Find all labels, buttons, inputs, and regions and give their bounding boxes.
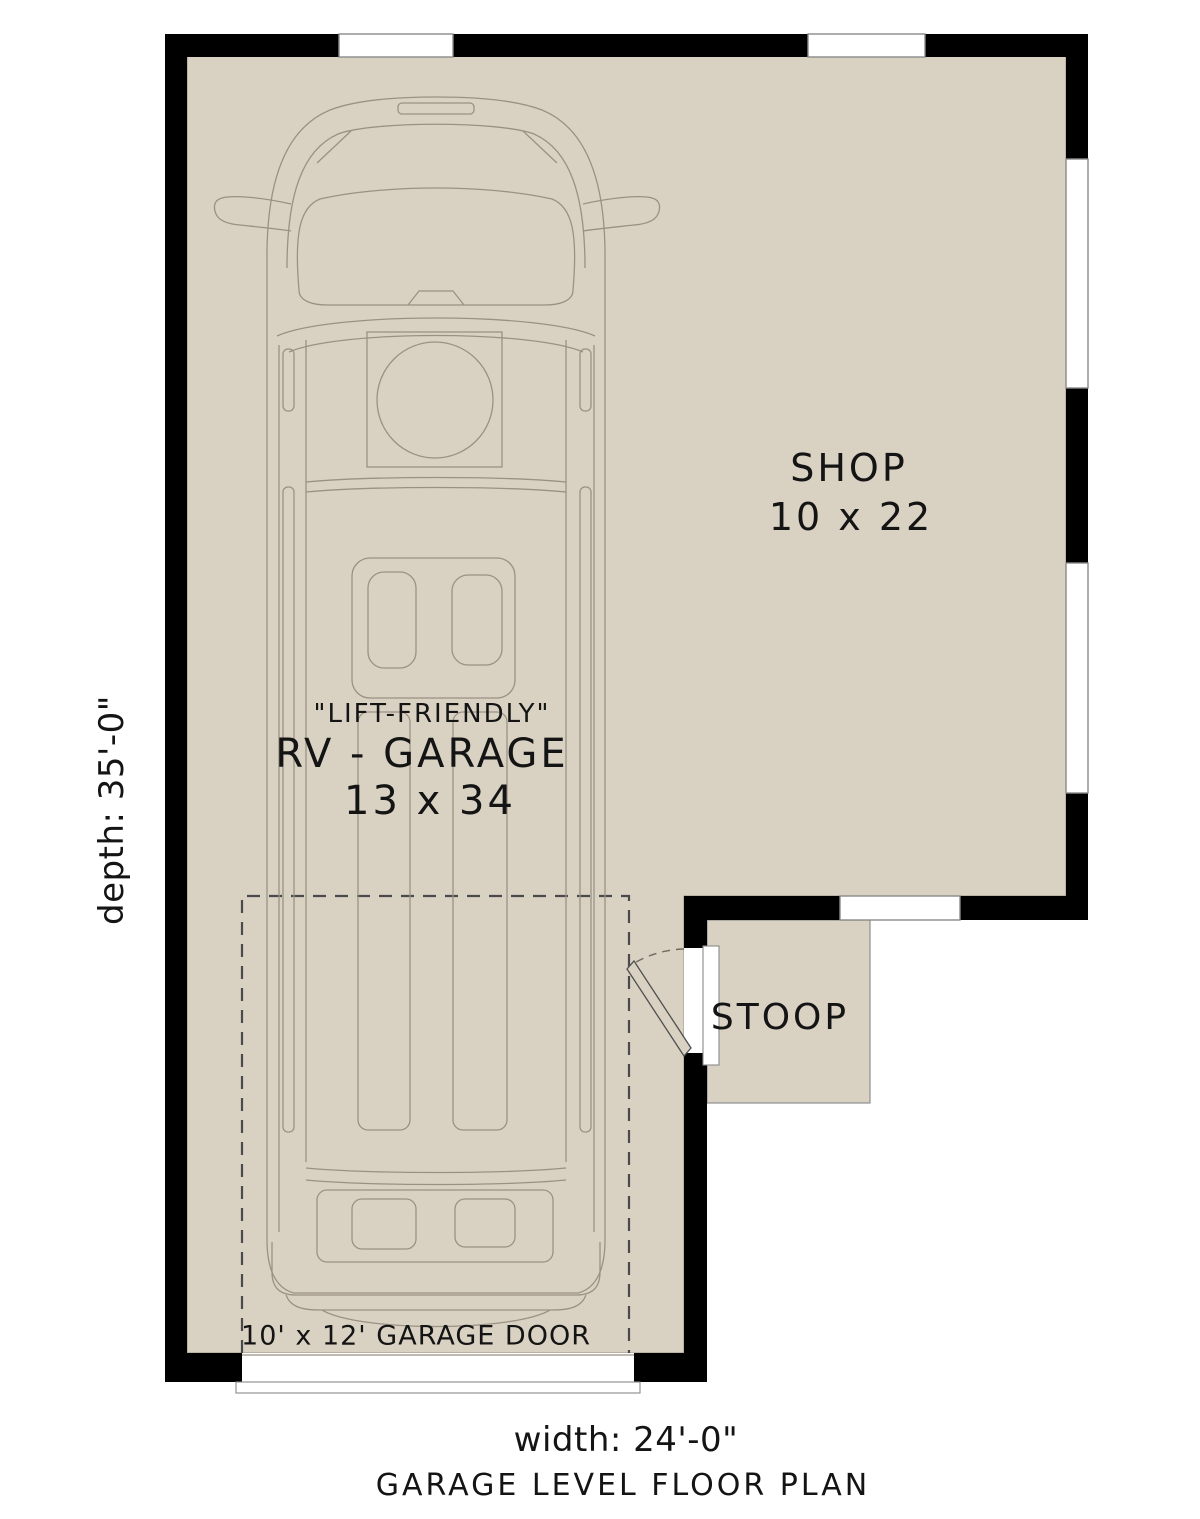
rv-garage-note-label: "LIFT-FRIENDLY" xyxy=(314,701,551,727)
wall-left xyxy=(165,34,187,1382)
rv-garage-dimensions-label: 13 x 34 xyxy=(344,781,516,821)
window-top-left xyxy=(339,34,453,57)
rv-garage-label: RV - GARAGE xyxy=(275,734,568,774)
shop-dimensions-label: 10 x 22 xyxy=(769,498,933,536)
width-dimension-label: width: 24'-0" xyxy=(514,1423,739,1457)
floor-plan-drawing xyxy=(0,0,1200,1519)
stoop-label: STOOP xyxy=(711,1000,849,1036)
window-right-lower xyxy=(1066,563,1088,793)
depth-dimension-label: depth: 35'-0" xyxy=(95,695,129,925)
garage-door-threshold xyxy=(236,1382,640,1393)
plan-title: GARAGE LEVEL FLOOR PLAN xyxy=(376,1471,871,1501)
garage-door-label: 10' x 12' GARAGE DOOR xyxy=(241,1323,591,1350)
garage-door-opening xyxy=(242,1353,634,1382)
shop-label: SHOP xyxy=(790,449,908,487)
window-top-right xyxy=(808,34,925,57)
window-right-upper xyxy=(1066,159,1088,388)
wall-top xyxy=(165,34,1088,57)
floor-plan-page: SHOP 10 x 22 "LIFT-FRIENDLY" RV - GARAGE… xyxy=(0,0,1200,1519)
window-shop-bottom xyxy=(840,896,960,920)
